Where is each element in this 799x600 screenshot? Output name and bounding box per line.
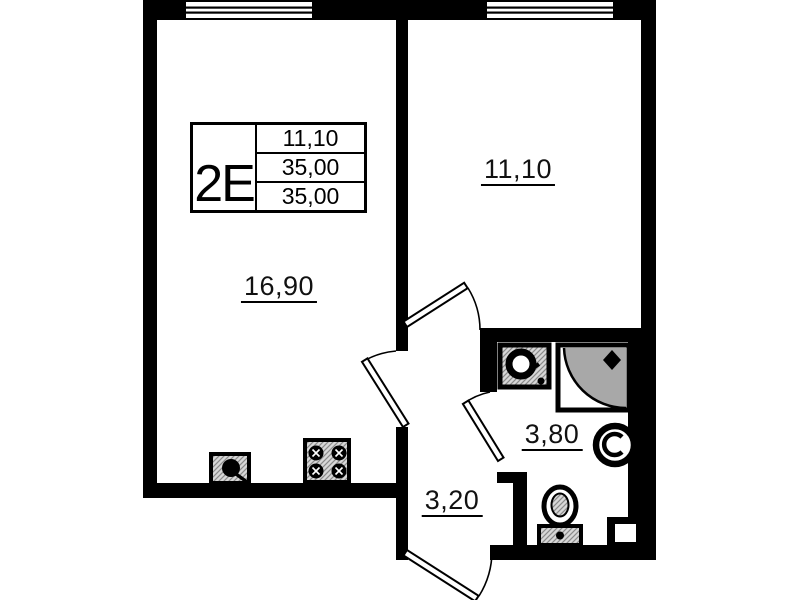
unit-info-card: 2E 11,10 35,00 35,00 <box>190 122 367 213</box>
room-hall-area-label: 3,20 <box>422 486 483 517</box>
wall-living-bottom <box>143 483 408 498</box>
vent-shaft-icon <box>607 517 645 550</box>
unit-area-row-1: 11,10 <box>257 125 364 154</box>
bathroom-sink-icon <box>500 345 549 387</box>
toilet-icon <box>539 487 581 545</box>
window-icon <box>186 2 312 18</box>
door-bedroom-icon <box>403 283 480 330</box>
wall-left <box>143 0 157 498</box>
wall-bathroom-top <box>480 328 641 342</box>
stove-icon <box>305 440 349 482</box>
window-icon <box>487 2 613 18</box>
wall-bathroom-corner <box>480 328 497 392</box>
room-bathroom-area-label: 3,80 <box>522 420 583 451</box>
floor-plan-drawing <box>0 0 799 600</box>
shower-cabin-icon <box>558 345 629 410</box>
door-entrance-icon <box>403 550 492 600</box>
wall-right <box>641 0 656 560</box>
unit-type-label: 2E <box>193 125 257 210</box>
kitchen-sink-icon <box>211 454 249 483</box>
door-living-icon <box>362 351 409 427</box>
door-bathroom-icon <box>463 392 504 461</box>
room-living-area-label: 16,90 <box>241 272 317 303</box>
wall-bathroom-lower <box>513 472 527 545</box>
wall-divider-upper <box>396 20 408 351</box>
floor-plan: 16,90 11,10 3,80 3,20 2E 11,10 35,00 35,… <box>0 0 799 600</box>
unit-area-row-3: 35,00 <box>257 183 364 210</box>
unit-area-row-2: 35,00 <box>257 154 364 183</box>
water-heater-icon <box>596 426 634 464</box>
room-bedroom-area-label: 11,10 <box>481 155 555 186</box>
